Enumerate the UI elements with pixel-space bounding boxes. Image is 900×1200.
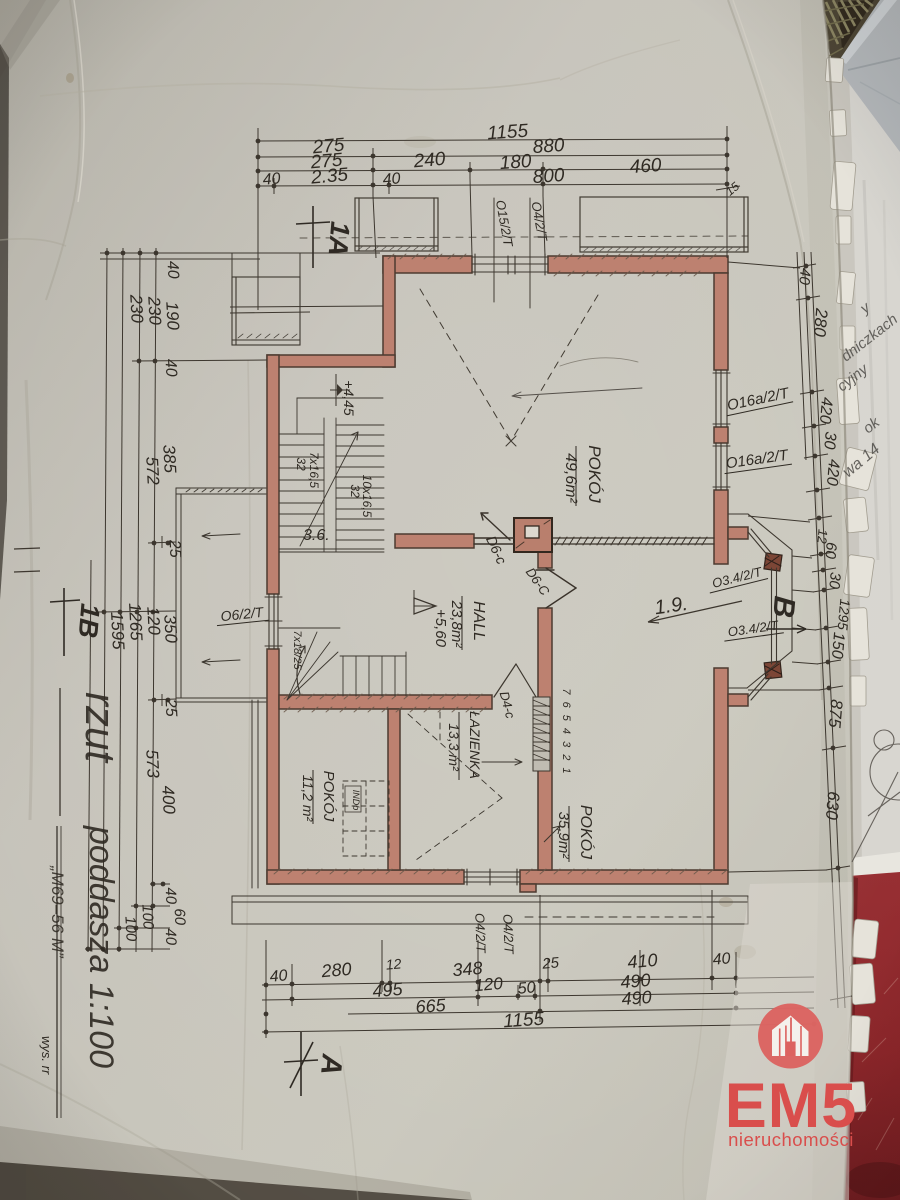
svg-text:50: 50	[517, 979, 536, 997]
svg-text:573: 573	[142, 749, 162, 779]
svg-text:40: 40	[162, 358, 180, 377]
svg-text:7x18/25: 7x18/25	[291, 630, 303, 670]
svg-text:10x16,5: 10x16,5	[360, 475, 374, 518]
svg-text:410: 410	[627, 950, 659, 973]
svg-text:7 6 5 4 3 2 1: 7 6 5 4 3 2 1	[560, 688, 572, 775]
svg-text:40: 40	[164, 260, 182, 279]
svg-text:23,8m²: 23,8m²	[448, 600, 465, 649]
svg-text:40: 40	[795, 267, 813, 286]
svg-text:100: 100	[121, 916, 139, 943]
svg-text:„M69–56 M”: „M69–56 M”	[48, 865, 67, 959]
svg-text:+5,60: +5,60	[432, 609, 449, 648]
svg-text:12: 12	[385, 955, 402, 972]
svg-text:INDb: INDb	[351, 790, 361, 811]
svg-text:POKÓJ: POKÓJ	[320, 771, 337, 822]
svg-text:180: 180	[499, 151, 533, 174]
svg-text:150: 150	[828, 631, 847, 659]
svg-text:49,6m²: 49,6m²	[562, 453, 579, 503]
svg-text:1.9.: 1.9.	[653, 593, 689, 619]
svg-text:40: 40	[712, 950, 731, 968]
svg-text:400: 400	[158, 785, 178, 815]
svg-text:280: 280	[320, 959, 353, 982]
svg-text:32: 32	[294, 457, 308, 471]
svg-text:13,3 m²: 13,3 m²	[446, 723, 462, 772]
svg-text:25: 25	[165, 538, 183, 558]
svg-text:230: 230	[126, 293, 147, 324]
svg-text:rzut: rzut	[77, 692, 124, 764]
svg-text:572: 572	[142, 456, 162, 486]
svg-text:420: 420	[816, 396, 835, 424]
svg-text:460: 460	[629, 155, 663, 178]
svg-text:495: 495	[372, 979, 405, 1002]
svg-text:280: 280	[810, 307, 832, 338]
svg-text:POKÓJ: POKÓJ	[585, 445, 604, 503]
svg-text:O4/2/T: O4/2/T	[500, 914, 516, 955]
svg-text:poddasza 1:100: poddasza 1:100	[82, 825, 120, 1068]
svg-text:60: 60	[821, 541, 839, 560]
svg-text:40: 40	[262, 170, 281, 188]
svg-text:7x16,5: 7x16,5	[307, 452, 321, 488]
svg-text:100: 100	[138, 904, 156, 931]
svg-text:3.6.: 3.6.	[303, 527, 330, 544]
svg-text:240: 240	[412, 149, 447, 173]
svg-text:1595: 1595	[107, 611, 128, 650]
svg-text:60: 60	[171, 908, 189, 926]
svg-text:wys. rr: wys. rr	[39, 1036, 54, 1075]
svg-text:1155: 1155	[487, 121, 530, 145]
svg-text:ŁAZIENKA: ŁAZIENKA	[467, 711, 483, 779]
svg-text:POKÓJ: POKÓJ	[577, 805, 596, 860]
svg-text:25: 25	[541, 954, 561, 973]
svg-text:O4/2/T: O4/2/T	[472, 913, 488, 954]
svg-text:880: 880	[532, 135, 566, 158]
svg-text:25: 25	[161, 697, 179, 717]
svg-text:490: 490	[621, 987, 652, 1009]
svg-text:30: 30	[825, 571, 843, 590]
svg-text:1295: 1295	[835, 598, 854, 631]
svg-text:1B: 1B	[73, 602, 106, 639]
svg-text:420: 420	[823, 458, 842, 486]
svg-text:12: 12	[814, 529, 830, 545]
svg-text:1155: 1155	[503, 1009, 546, 1033]
svg-text:40: 40	[269, 967, 288, 985]
svg-text:1A: 1A	[323, 220, 356, 257]
svg-text:40: 40	[162, 887, 180, 905]
svg-text:2.35: 2.35	[309, 164, 349, 188]
svg-text:B: B	[766, 595, 801, 619]
svg-text:665: 665	[415, 995, 447, 1017]
svg-text:875: 875	[825, 699, 846, 729]
svg-text:120: 120	[474, 974, 504, 995]
svg-text:350: 350	[160, 614, 180, 644]
svg-text:nieruchomości: nieruchomości	[728, 1129, 854, 1150]
svg-text:630: 630	[822, 791, 843, 821]
svg-text:40: 40	[162, 928, 180, 946]
svg-text:32: 32	[348, 484, 362, 498]
svg-text:A: A	[314, 1052, 348, 1077]
svg-text:HALL: HALL	[470, 601, 487, 641]
svg-text:40: 40	[382, 170, 401, 188]
svg-text:35,9m²: 35,9m²	[555, 812, 572, 860]
svg-text:190: 190	[162, 301, 182, 331]
svg-text:800: 800	[532, 165, 566, 188]
svg-text:+4,45: +4,45	[341, 380, 357, 416]
svg-text:11,2 m²: 11,2 m²	[300, 775, 316, 823]
svg-text:30: 30	[820, 431, 838, 450]
